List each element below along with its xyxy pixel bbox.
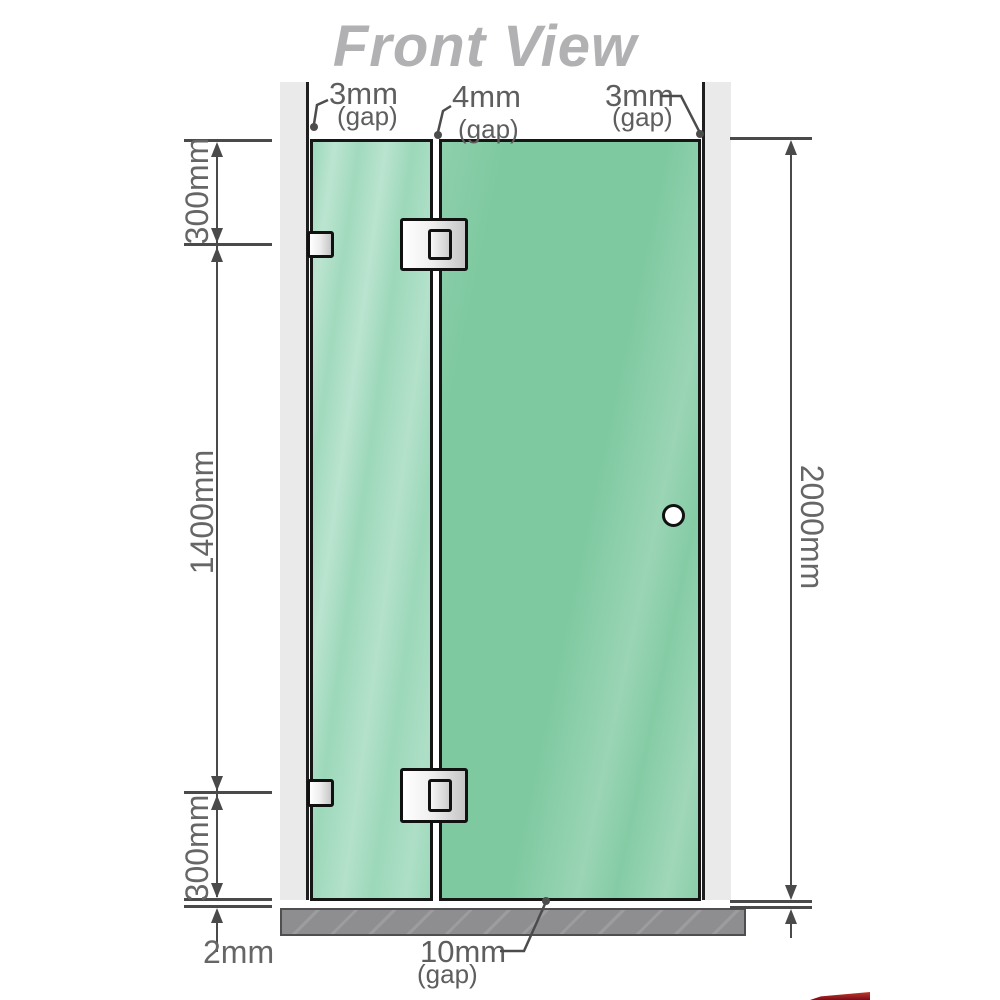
wall-right	[702, 82, 731, 900]
dim-label-left-bottom: 300mm	[181, 795, 213, 902]
dim-arrow-up	[211, 247, 223, 262]
dim-tick	[184, 905, 272, 908]
front-view-diagram: Front View 300mm 1400mm 300mm 2mm 2000mm…	[0, 0, 1000, 1000]
floor-base	[280, 908, 746, 936]
hinge-top-knuckle	[428, 229, 452, 260]
gap-label-top-center-suffix: (gap)	[458, 116, 519, 142]
gap-label-bottom-suffix: (gap)	[417, 961, 478, 987]
dim-line-right	[790, 143, 792, 897]
gap-label-top-left-suffix: (gap)	[337, 103, 398, 129]
dim-arrow-down	[211, 776, 223, 791]
page-title: Front View	[290, 18, 680, 76]
gap-label-top-center-value: 4mm	[452, 81, 521, 112]
dim-tick	[730, 137, 812, 140]
dim-arrow-down	[785, 885, 797, 900]
wall-bracket-bottom	[307, 779, 334, 807]
gap-label-top-right-suffix: (gap)	[612, 104, 673, 130]
door-handle-knob	[662, 504, 685, 527]
watermark-logo-fragment	[810, 992, 870, 1000]
dim-label-left-middle: 1400mm	[186, 450, 218, 575]
dim-label-right-overall: 2000mm	[796, 465, 828, 590]
dim-line-right-stub	[790, 922, 792, 938]
wall-left	[280, 82, 309, 900]
dim-tick	[730, 906, 812, 909]
dim-arrow-up	[785, 140, 797, 155]
dim-label-floor-gap: 2mm	[203, 936, 274, 968]
glass-panel-door	[439, 139, 701, 901]
dim-tick	[184, 791, 272, 794]
wall-bracket-top	[307, 231, 334, 258]
dim-tick	[730, 900, 812, 903]
hinge-bottom-knuckle	[428, 779, 452, 812]
dim-label-left-top: 300mm	[181, 138, 213, 245]
